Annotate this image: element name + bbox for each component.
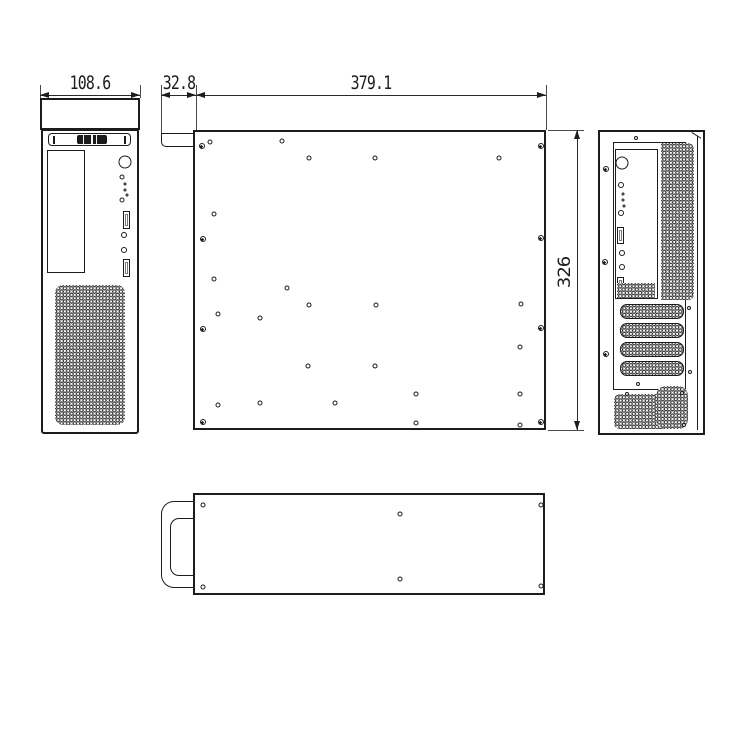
- extension-line: [546, 85, 547, 130]
- mount-hole: [414, 421, 419, 426]
- top-view-panel: [193, 493, 545, 595]
- dim-arrow-icon: [574, 421, 580, 430]
- side-front-bezel-lip: [161, 133, 194, 147]
- led-dot: [126, 194, 129, 197]
- mount-hole: [212, 212, 217, 217]
- rear-hole: [625, 392, 629, 396]
- mount-hole: [285, 286, 290, 291]
- dim-label-body-length: 379.1: [235, 74, 508, 93]
- mount-hole: [212, 277, 217, 282]
- dim-label-bezel-depth: 32.8: [157, 74, 201, 93]
- rear-hole: [688, 370, 692, 374]
- rear-holes-layer: [600, 132, 703, 433]
- extension-line: [140, 85, 141, 98]
- mount-hole: [258, 401, 263, 406]
- mount-hole: [216, 403, 221, 408]
- mount-hole: [518, 423, 523, 428]
- mount-hole: [374, 303, 379, 308]
- drive-bay-cover: [47, 150, 85, 273]
- audio-jack: [121, 232, 127, 238]
- audio-jack: [121, 247, 127, 253]
- bezel-tick: [124, 136, 126, 144]
- technical-drawing-canvas: 108.6 32.8 379.1 326: [0, 0, 750, 750]
- dim-arrow-icon: [196, 92, 205, 98]
- rear-hole: [680, 391, 684, 395]
- surface-hole: [398, 577, 403, 582]
- dimension-line: [196, 95, 546, 96]
- brand-logo: [77, 135, 107, 144]
- mount-hole: [373, 364, 378, 369]
- mount-hole: [497, 156, 502, 161]
- carry-handle-inner: [170, 518, 194, 576]
- dimension-line: [577, 130, 578, 430]
- mount-hole: [258, 316, 263, 321]
- dim-arrow-icon: [574, 130, 580, 139]
- side-panel-holes-layer: [195, 132, 544, 428]
- side-view-panel: [193, 130, 546, 430]
- mount-hole: [208, 140, 213, 145]
- mount-hole: [216, 312, 221, 317]
- front-top-cap: [40, 98, 140, 130]
- bezel-tick: [53, 136, 55, 144]
- usb-port: [123, 211, 130, 229]
- reset-hole: [120, 198, 125, 203]
- extension-line: [548, 430, 584, 431]
- mount-hole: [307, 156, 312, 161]
- mount-hole: [414, 392, 419, 397]
- mount-hole: [519, 302, 524, 307]
- mount-hole: [333, 401, 338, 406]
- top-surface-holes-layer: [195, 495, 543, 593]
- dim-label-body-height: 326: [556, 251, 573, 295]
- mount-hole: [307, 303, 312, 308]
- rear-view: [598, 130, 705, 435]
- usb-port: [123, 259, 130, 277]
- hdd-led: [120, 175, 125, 180]
- led-dot: [124, 189, 127, 192]
- mount-hole: [280, 139, 285, 144]
- mount-hole: [518, 392, 523, 397]
- mount-hole: [306, 364, 311, 369]
- mount-hole: [518, 345, 523, 350]
- surface-hole: [398, 512, 403, 517]
- led-dot: [124, 183, 127, 186]
- power-button: [119, 156, 132, 169]
- rear-hole: [634, 136, 638, 140]
- rear-hole: [636, 382, 640, 386]
- dim-label-front-width: 108.6: [51, 74, 129, 93]
- front-vent-grille: [55, 285, 125, 425]
- mount-hole: [373, 156, 378, 161]
- dim-arrow-icon: [537, 92, 546, 98]
- dimension-line: [40, 95, 140, 96]
- rear-hole: [687, 306, 691, 310]
- rear-hole: [682, 423, 686, 427]
- front-view: [40, 98, 140, 434]
